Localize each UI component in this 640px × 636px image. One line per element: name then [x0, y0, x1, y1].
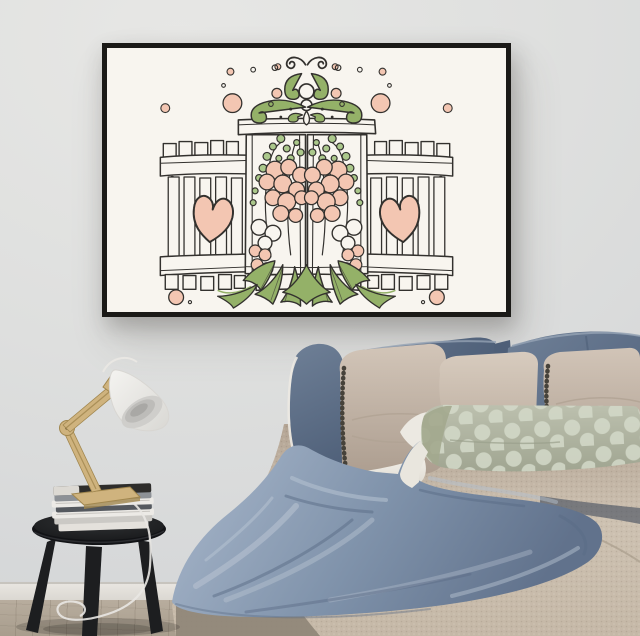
foreground-scene: [0, 0, 640, 636]
side-table-group: [16, 358, 180, 636]
polka-dot-pillow: [421, 405, 640, 472]
lamp-wire-arc: [103, 358, 137, 372]
bedroom-photo: [0, 0, 640, 636]
